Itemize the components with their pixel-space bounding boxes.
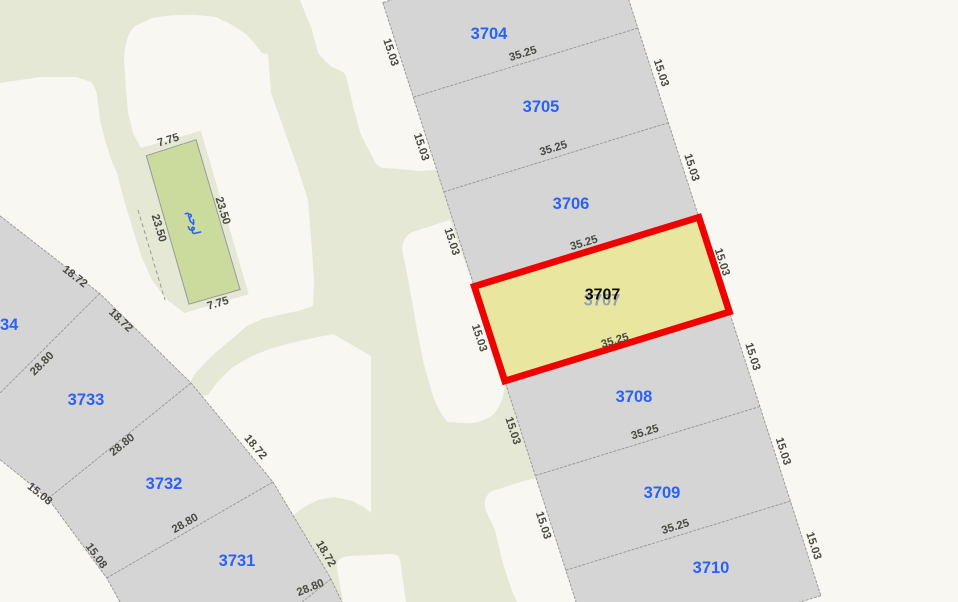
svg-text:3705: 3705 — [523, 98, 560, 116]
svg-text:3708: 3708 — [616, 388, 653, 406]
svg-text:3734: 3734 — [0, 316, 19, 334]
svg-text:3733: 3733 — [68, 391, 105, 409]
svg-text:3704: 3704 — [471, 25, 509, 43]
svg-text:3732: 3732 — [146, 475, 183, 493]
svg-text:3707: 3707 — [585, 287, 621, 304]
svg-text:3709: 3709 — [644, 484, 681, 502]
svg-text:3731: 3731 — [219, 552, 256, 570]
svg-text:3710: 3710 — [693, 559, 730, 577]
svg-text:3706: 3706 — [553, 195, 590, 213]
